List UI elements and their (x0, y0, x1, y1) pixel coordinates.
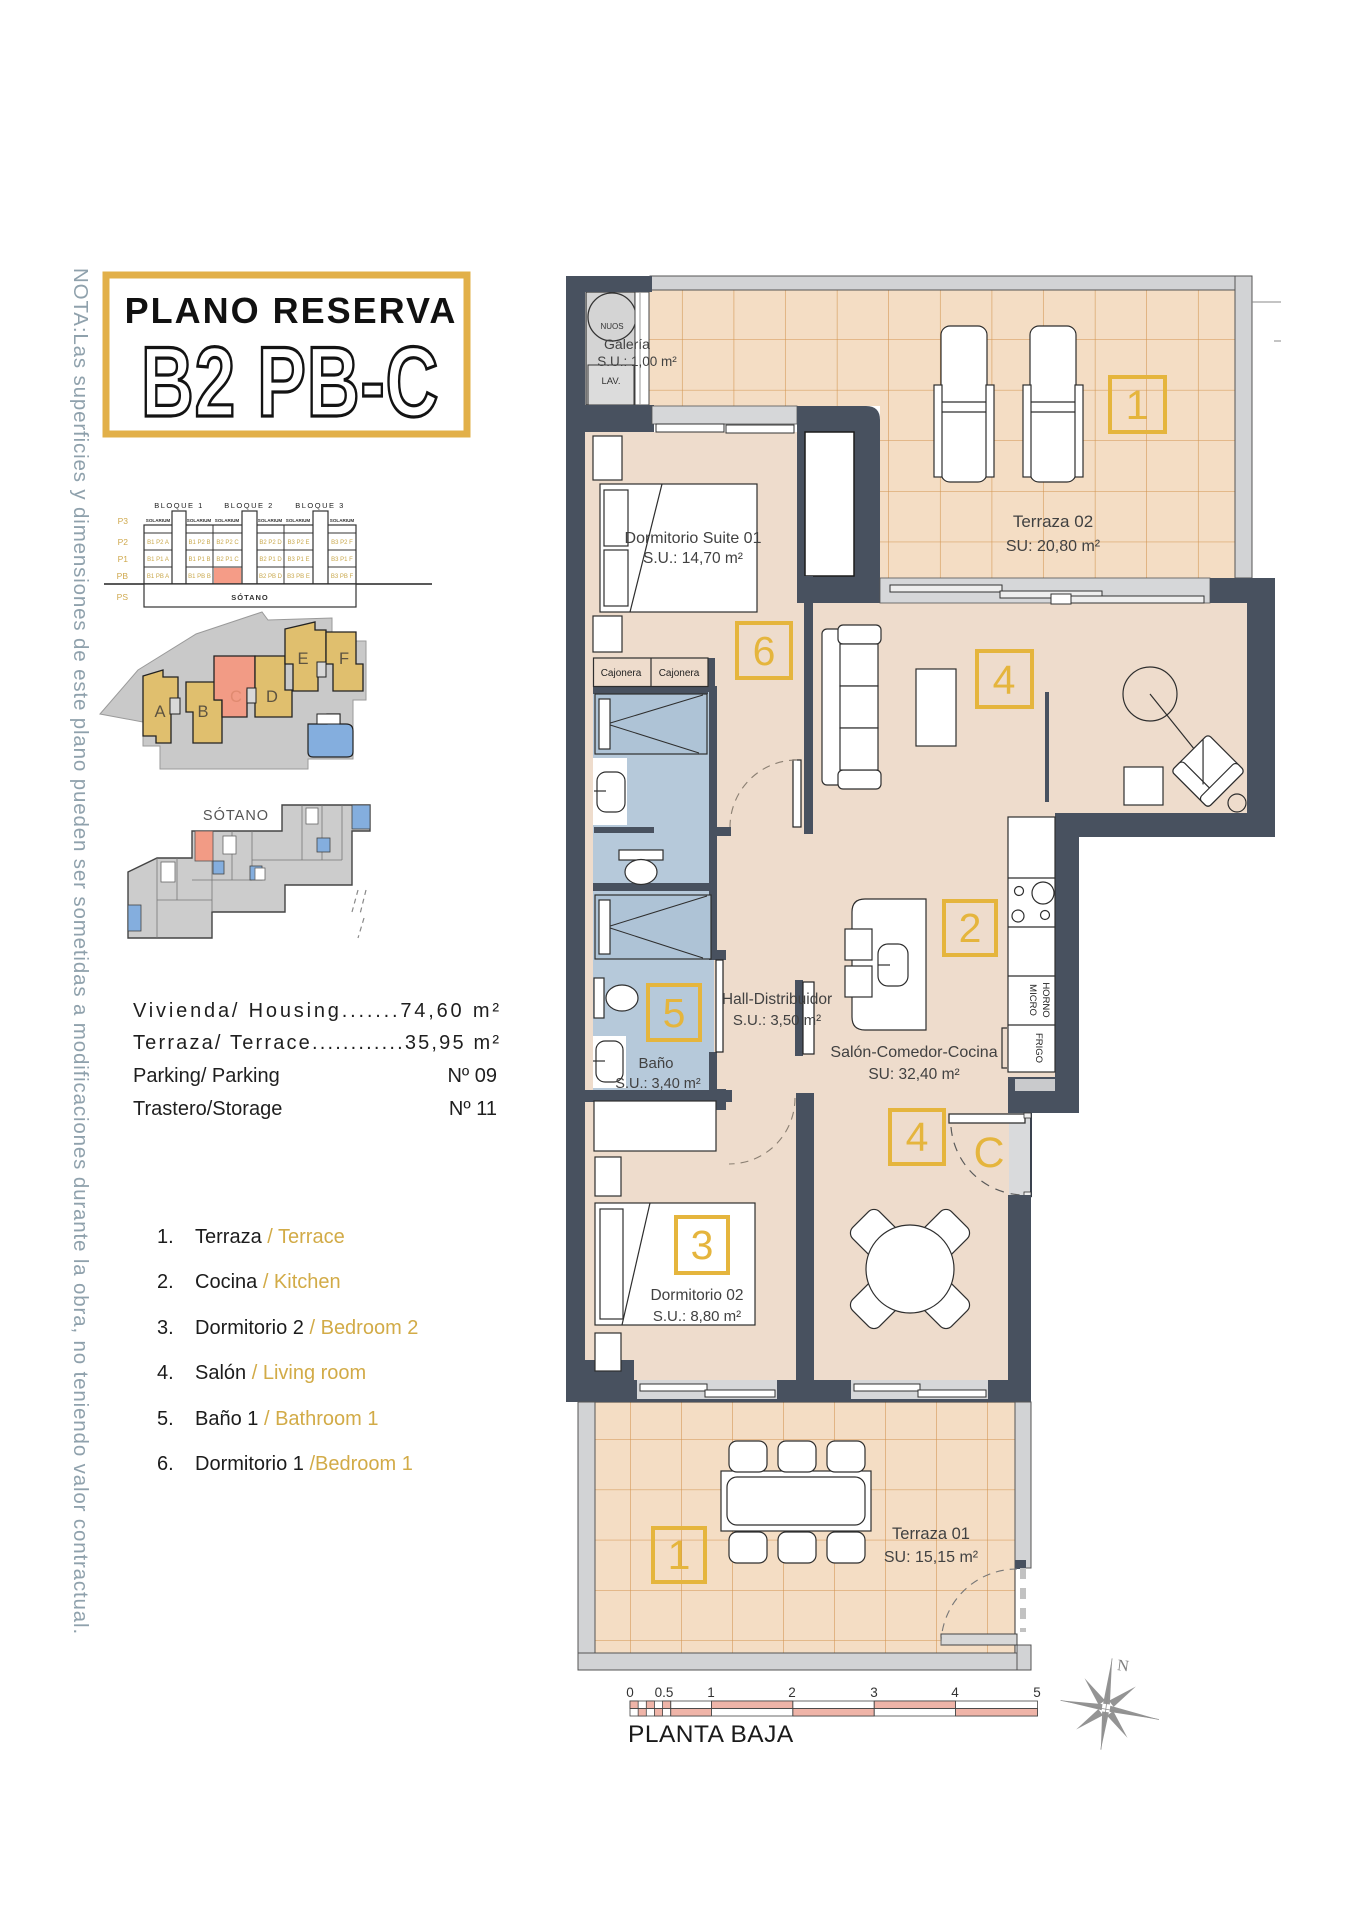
svg-text:F: F (339, 650, 349, 668)
svg-text:B1 PB B: B1 PB B (188, 574, 211, 580)
svg-text:B3 P1 E: B3 P1 E (287, 557, 309, 563)
svg-text:D: D (266, 688, 278, 706)
svg-text:PB: PB (117, 571, 129, 581)
svg-text:Baño 1 / Bathroom 1: Baño 1 / Bathroom 1 (195, 1408, 378, 1430)
svg-text:B1 P2 B: B1 P2 B (188, 540, 210, 546)
svg-text:P2: P2 (118, 537, 129, 547)
svg-text:SOLARIUM: SOLARIUM (215, 518, 240, 523)
svg-text:Cajonera: Cajonera (659, 668, 700, 679)
svg-text:6: 6 (753, 628, 776, 674)
svg-text:FRIGO: FRIGO (1033, 1033, 1044, 1063)
svg-text:Nº 11: Nº 11 (449, 1098, 497, 1120)
svg-text:4: 4 (951, 1685, 959, 1700)
svg-text:Terraza 02: Terraza 02 (1013, 512, 1093, 531)
svg-text:5.: 5. (157, 1408, 174, 1430)
svg-text:2.: 2. (157, 1271, 174, 1293)
svg-text:SU: 15,15 m²: SU: 15,15 m² (884, 1549, 979, 1566)
svg-text:BLOQUE 2: BLOQUE 2 (224, 501, 274, 510)
svg-text:SÓTANO: SÓTANO (203, 807, 269, 824)
svg-text:Dormitorio Suite 01: Dormitorio Suite 01 (625, 530, 762, 547)
svg-text:E: E (297, 650, 308, 668)
svg-text:NOTA:Las superficies y dimensi: NOTA:Las superficies y dimensiones de es… (69, 268, 92, 1635)
svg-text:SOLARIUM: SOLARIUM (146, 518, 171, 523)
svg-text:Cajonera: Cajonera (601, 668, 642, 679)
svg-text:B1 P1 A: B1 P1 A (147, 557, 169, 563)
svg-text:3.: 3. (157, 1317, 174, 1339)
svg-text:B2 P2 D: B2 P2 D (259, 540, 282, 546)
svg-text:HORNO: HORNO (1040, 982, 1051, 1017)
svg-text:NUOS: NUOS (600, 322, 623, 331)
svg-text:B1 PB A: B1 PB A (147, 574, 169, 580)
svg-text:Galería: Galería (604, 336, 650, 352)
svg-text:S.U.: 3,40 m²: S.U.: 3,40 m² (615, 1076, 701, 1092)
svg-text:B1 P1 B: B1 P1 B (188, 557, 210, 563)
svg-text:S.U.: 3,50 m²: S.U.: 3,50 m² (733, 1012, 821, 1029)
svg-text:B3 P1 F: B3 P1 F (331, 557, 353, 563)
svg-text:S.U.: 1,00 m²: S.U.: 1,00 m² (597, 354, 677, 369)
svg-text:SOLARIUM: SOLARIUM (258, 518, 283, 523)
svg-text:C: C (973, 1129, 1004, 1177)
svg-text:6.: 6. (157, 1453, 174, 1475)
svg-text:Salón-Comedor-Cocina: Salón-Comedor-Cocina (830, 1044, 997, 1061)
svg-text:1: 1 (707, 1685, 715, 1700)
svg-text:B1 P2 A: B1 P2 A (147, 540, 169, 546)
svg-text:SÓTANO: SÓTANO (231, 593, 269, 602)
svg-text:P3: P3 (118, 516, 129, 526)
svg-text:BLOQUE 3: BLOQUE 3 (295, 501, 345, 510)
svg-text:5: 5 (1033, 1685, 1041, 1700)
svg-text:C: C (230, 688, 242, 706)
svg-text:B: B (197, 703, 208, 721)
svg-text:MICRO: MICRO (1027, 984, 1038, 1016)
svg-text:2: 2 (959, 905, 982, 951)
svg-text:B3 P2 E: B3 P2 E (287, 540, 309, 546)
svg-text:SOLARIUM: SOLARIUM (286, 518, 311, 523)
svg-text:1.: 1. (157, 1226, 174, 1248)
svg-text:PLANO RESERVA: PLANO RESERVA (125, 290, 458, 331)
svg-text:5: 5 (663, 990, 686, 1036)
svg-text:Parking/ Parking: Parking/ Parking (133, 1065, 280, 1087)
svg-text:SU: 20,80 m²: SU: 20,80 m² (1006, 538, 1101, 555)
svg-text:3: 3 (691, 1222, 714, 1268)
svg-text:B2 P2 C: B2 P2 C (216, 540, 239, 546)
svg-text:Cocina / Kitchen: Cocina / Kitchen (195, 1271, 341, 1293)
svg-text:Salón / Living room: Salón / Living room (195, 1362, 366, 1384)
svg-text:B2 PB D: B2 PB D (259, 574, 283, 580)
svg-text:0: 0 (626, 1685, 634, 1700)
svg-text:Terraza 01: Terraza 01 (892, 1525, 970, 1543)
svg-text:1: 1 (668, 1532, 691, 1578)
svg-text:1: 1 (1126, 382, 1149, 428)
svg-text:B2 PB-C: B2 PB-C (141, 327, 439, 437)
svg-text:4: 4 (993, 657, 1016, 703)
svg-text:PLANTA BAJA: PLANTA BAJA (628, 1721, 794, 1748)
svg-text:SOLARIUM: SOLARIUM (330, 518, 355, 523)
svg-text:Dormitorio 02: Dormitorio 02 (650, 1287, 743, 1304)
svg-text:4.: 4. (157, 1362, 174, 1384)
svg-text:Trastero/Storage: Trastero/Storage (133, 1098, 282, 1120)
svg-text:3: 3 (870, 1685, 878, 1700)
svg-text:SU: 32,40 m²: SU: 32,40 m² (868, 1066, 959, 1083)
svg-text:B2 P1 C: B2 P1 C (216, 557, 239, 563)
svg-text:Hall-Distribuidor: Hall-Distribuidor (722, 991, 832, 1008)
svg-text:B3 PB F: B3 PB F (331, 574, 354, 580)
svg-text:Nº 09: Nº 09 (447, 1065, 497, 1087)
svg-text:B3 PB E: B3 PB E (287, 574, 310, 580)
svg-text:LAV.: LAV. (601, 376, 620, 387)
svg-text:P1: P1 (118, 554, 129, 564)
svg-text:S.U.: 8,80 m²: S.U.: 8,80 m² (653, 1308, 741, 1325)
svg-text:S.U.: 14,70 m²: S.U.: 14,70 m² (643, 550, 743, 567)
svg-text:A: A (154, 703, 165, 721)
svg-text:Terraza / Terrace: Terraza / Terrace (195, 1226, 345, 1248)
svg-text:B2 P1 D: B2 P1 D (259, 557, 282, 563)
svg-text:Dormitorio 1 /Bedroom 1: Dormitorio 1 /Bedroom 1 (195, 1453, 413, 1475)
svg-text:0.5: 0.5 (655, 1685, 674, 1700)
svg-text:SOLARIUM: SOLARIUM (187, 518, 212, 523)
svg-text:4: 4 (906, 1114, 929, 1160)
svg-text:BLOQUE 1: BLOQUE 1 (154, 501, 204, 510)
svg-text:PS: PS (117, 592, 129, 602)
svg-text:B3 P2 F: B3 P2 F (331, 540, 353, 546)
svg-text:2: 2 (788, 1685, 796, 1700)
svg-text:Dormitorio 2 / Bedroom 2: Dormitorio 2 / Bedroom 2 (195, 1317, 418, 1339)
svg-text:Baño: Baño (638, 1055, 673, 1072)
